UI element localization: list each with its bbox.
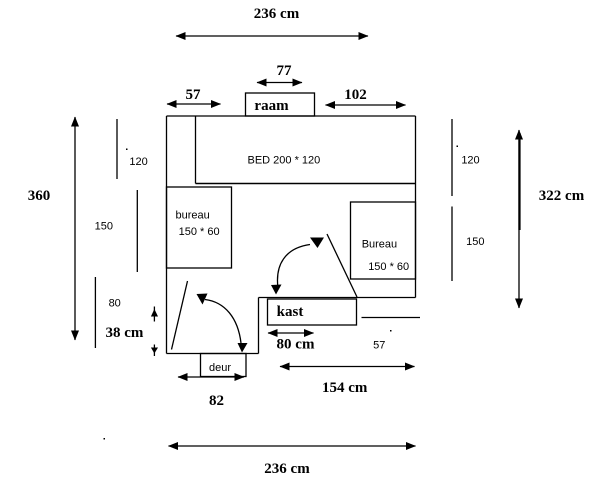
- svg-text:80: 80: [109, 298, 121, 310]
- svg-text:80 cm: 80 cm: [277, 337, 315, 353]
- svg-text:150: 150: [466, 236, 484, 248]
- svg-text:150 * 60: 150 * 60: [179, 226, 220, 238]
- svg-text:38 cm: 38 cm: [105, 325, 143, 341]
- svg-text:BED 200 * 120: BED 200 * 120: [248, 155, 321, 167]
- svg-text:kast: kast: [277, 304, 304, 320]
- svg-text:150: 150: [95, 221, 113, 233]
- svg-text:150 * 60: 150 * 60: [368, 261, 409, 273]
- svg-text:57: 57: [373, 340, 385, 352]
- svg-text:deur: deur: [209, 362, 231, 374]
- svg-text:bureau: bureau: [176, 210, 210, 222]
- svg-text:236 cm: 236 cm: [254, 6, 300, 22]
- svg-text:360: 360: [28, 188, 51, 204]
- svg-text:154 cm: 154 cm: [322, 380, 368, 396]
- svg-text:57: 57: [186, 87, 202, 103]
- svg-text:raam: raam: [254, 98, 289, 114]
- svg-text:82: 82: [209, 393, 224, 409]
- svg-text:120: 120: [129, 156, 147, 168]
- svg-text:102: 102: [344, 87, 367, 103]
- svg-text:322 cm: 322 cm: [539, 188, 585, 204]
- svg-text:120: 120: [461, 155, 479, 167]
- svg-text:236 cm: 236 cm: [264, 461, 310, 477]
- svg-text:77: 77: [277, 63, 293, 79]
- svg-text:Bureau: Bureau: [362, 239, 397, 251]
